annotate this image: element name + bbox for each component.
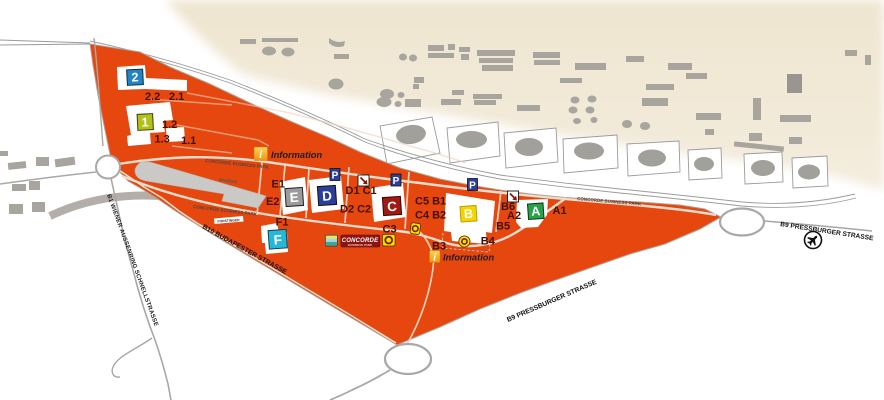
- svg-text:P: P: [469, 180, 476, 191]
- svg-text:B: B: [464, 207, 474, 222]
- svg-text:D2 C2: D2 C2: [340, 204, 371, 216]
- svg-text:E2: E2: [266, 196, 279, 208]
- svg-text:2.1: 2.1: [169, 91, 184, 103]
- svg-text:2: 2: [131, 70, 139, 84]
- svg-text:C4 B2: C4 B2: [415, 210, 446, 222]
- svg-text:BUSINESS PARK: BUSINESS PARK: [348, 243, 373, 247]
- svg-text:1: 1: [141, 115, 149, 129]
- svg-text:F: F: [273, 232, 282, 248]
- svg-text:E1: E1: [272, 179, 285, 191]
- svg-text:C: C: [387, 199, 398, 215]
- svg-text:P: P: [332, 170, 339, 181]
- svg-text:Information: Information: [271, 150, 322, 160]
- svg-text:F1: F1: [276, 217, 289, 229]
- svg-text:D1 C1: D1 C1: [346, 185, 377, 197]
- svg-text:A1: A1: [553, 205, 567, 217]
- svg-text:C5 B1: C5 B1: [415, 196, 446, 208]
- svg-text:D: D: [322, 188, 333, 204]
- svg-text:E: E: [289, 190, 299, 206]
- svg-text:C3: C3: [383, 224, 397, 236]
- svg-text:A: A: [531, 204, 541, 219]
- svg-text:B5: B5: [496, 221, 510, 233]
- svg-text:B4: B4: [481, 236, 496, 248]
- svg-text:Information: Information: [443, 253, 494, 263]
- svg-text:1.2: 1.2: [162, 119, 177, 131]
- svg-text:2.2: 2.2: [145, 91, 160, 103]
- svg-text:1.3: 1.3: [155, 134, 170, 146]
- svg-text:P: P: [393, 176, 400, 187]
- svg-text:1.1: 1.1: [181, 135, 196, 147]
